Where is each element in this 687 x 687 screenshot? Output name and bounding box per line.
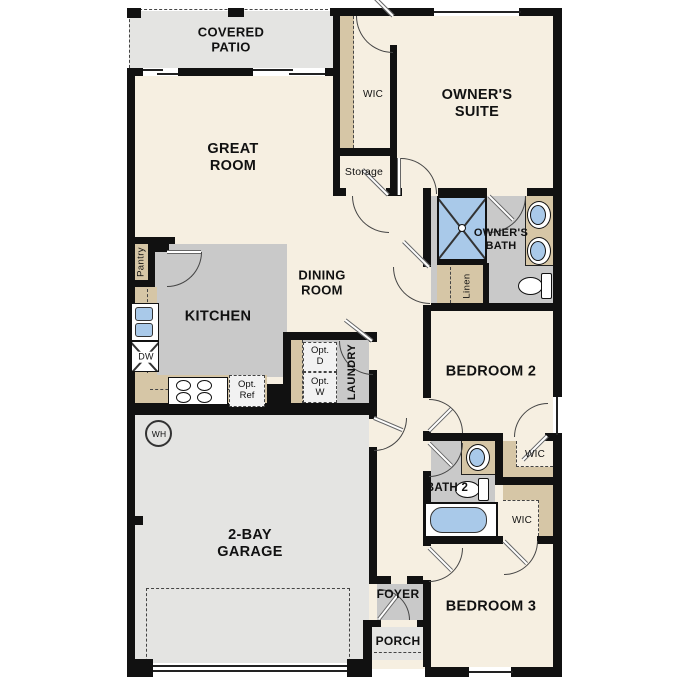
wall [438,188,487,196]
opt-dryer-line2: D [317,357,324,368]
stove [168,377,228,405]
wall [495,477,562,485]
label-owners-bath: OWNER'S BATH [461,227,541,253]
dishwasher: DW [131,341,159,372]
wall [495,441,503,477]
wall [333,188,346,196]
window [433,8,520,16]
label-pantry: Pantry [136,247,147,277]
label-covered-patio: COVERED PATIO [185,25,277,56]
wall [423,305,431,398]
garage-apron-dashed [146,588,350,667]
wall [228,8,244,17]
wall [537,536,562,544]
wall [512,667,562,677]
wall [127,516,143,525]
wall [407,576,423,584]
wall [325,68,340,76]
toilet-bowl [518,277,543,295]
label-dining-room: DINING ROOM [290,268,354,299]
label-wic-bedroom3: WIC [502,515,542,527]
wall [527,188,562,196]
wall [431,433,503,441]
label-laundry: LAUNDRY [346,344,358,400]
wall [553,434,562,677]
wall [431,303,562,311]
bathtub-basin [430,507,487,533]
wall [363,620,372,677]
opt-washer: Opt. W [303,372,337,403]
window [468,667,512,677]
porch-edge-dashed [374,652,421,653]
garage-door [153,663,347,675]
sliding-door [143,68,178,76]
label-great-room: GREAT ROOM [201,141,265,175]
label-wic-owner: WIC [353,89,393,101]
wall [148,244,155,282]
wall [369,447,377,580]
wall [330,8,433,16]
wall [423,188,431,267]
linen-dashed-line [450,267,451,303]
wic-owner-shelving [340,16,354,148]
wall [369,576,391,584]
wall [417,620,423,627]
label-storage: Storage [336,166,392,178]
label-bedroom3: BEDROOM 3 [426,598,556,615]
wall [267,384,284,406]
label-owners-suite: OWNER'S SUITE [430,87,524,121]
toilet-tank [541,273,552,299]
dishwasher-label: DW [137,352,154,363]
wall [483,263,489,311]
wall [178,68,253,76]
linen-closet [437,265,483,305]
wall [425,667,468,677]
label-bedroom2: BEDROOM 2 [426,363,556,380]
kitchen-sink [131,303,159,341]
label-linen: Linen [462,273,473,298]
opt-refrigerator: Opt. Ref [229,375,265,407]
sink-basin [530,205,546,225]
wall [127,280,155,287]
label-garage: 2-BAY GARAGE [207,527,293,561]
label-porch: PORCH [370,634,426,648]
opt-washer-line1: Opt. [311,377,329,388]
wall [333,148,397,156]
wall [127,8,141,18]
laundry-shelving [291,340,303,404]
opt-washer-line2: W [316,388,325,399]
water-heater-label: WH [152,429,167,439]
sink-basin [469,448,485,467]
wall [283,332,291,412]
window [553,396,562,434]
sliding-door [253,68,325,76]
floor-plan: DW Opt. Ref Opt. D Opt. W WH [0,0,687,687]
opt-dryer: Opt. D [303,342,337,372]
wall [127,659,153,677]
wall [553,8,562,396]
label-foyer: FOYER [370,587,426,601]
toilet-tank [478,478,489,501]
label-wic-bedroom2: WIC [515,449,555,461]
label-bath2: BATH 2 [425,482,469,496]
opt-ref-line2: Ref [240,391,255,402]
label-kitchen: KITCHEN [168,308,268,325]
